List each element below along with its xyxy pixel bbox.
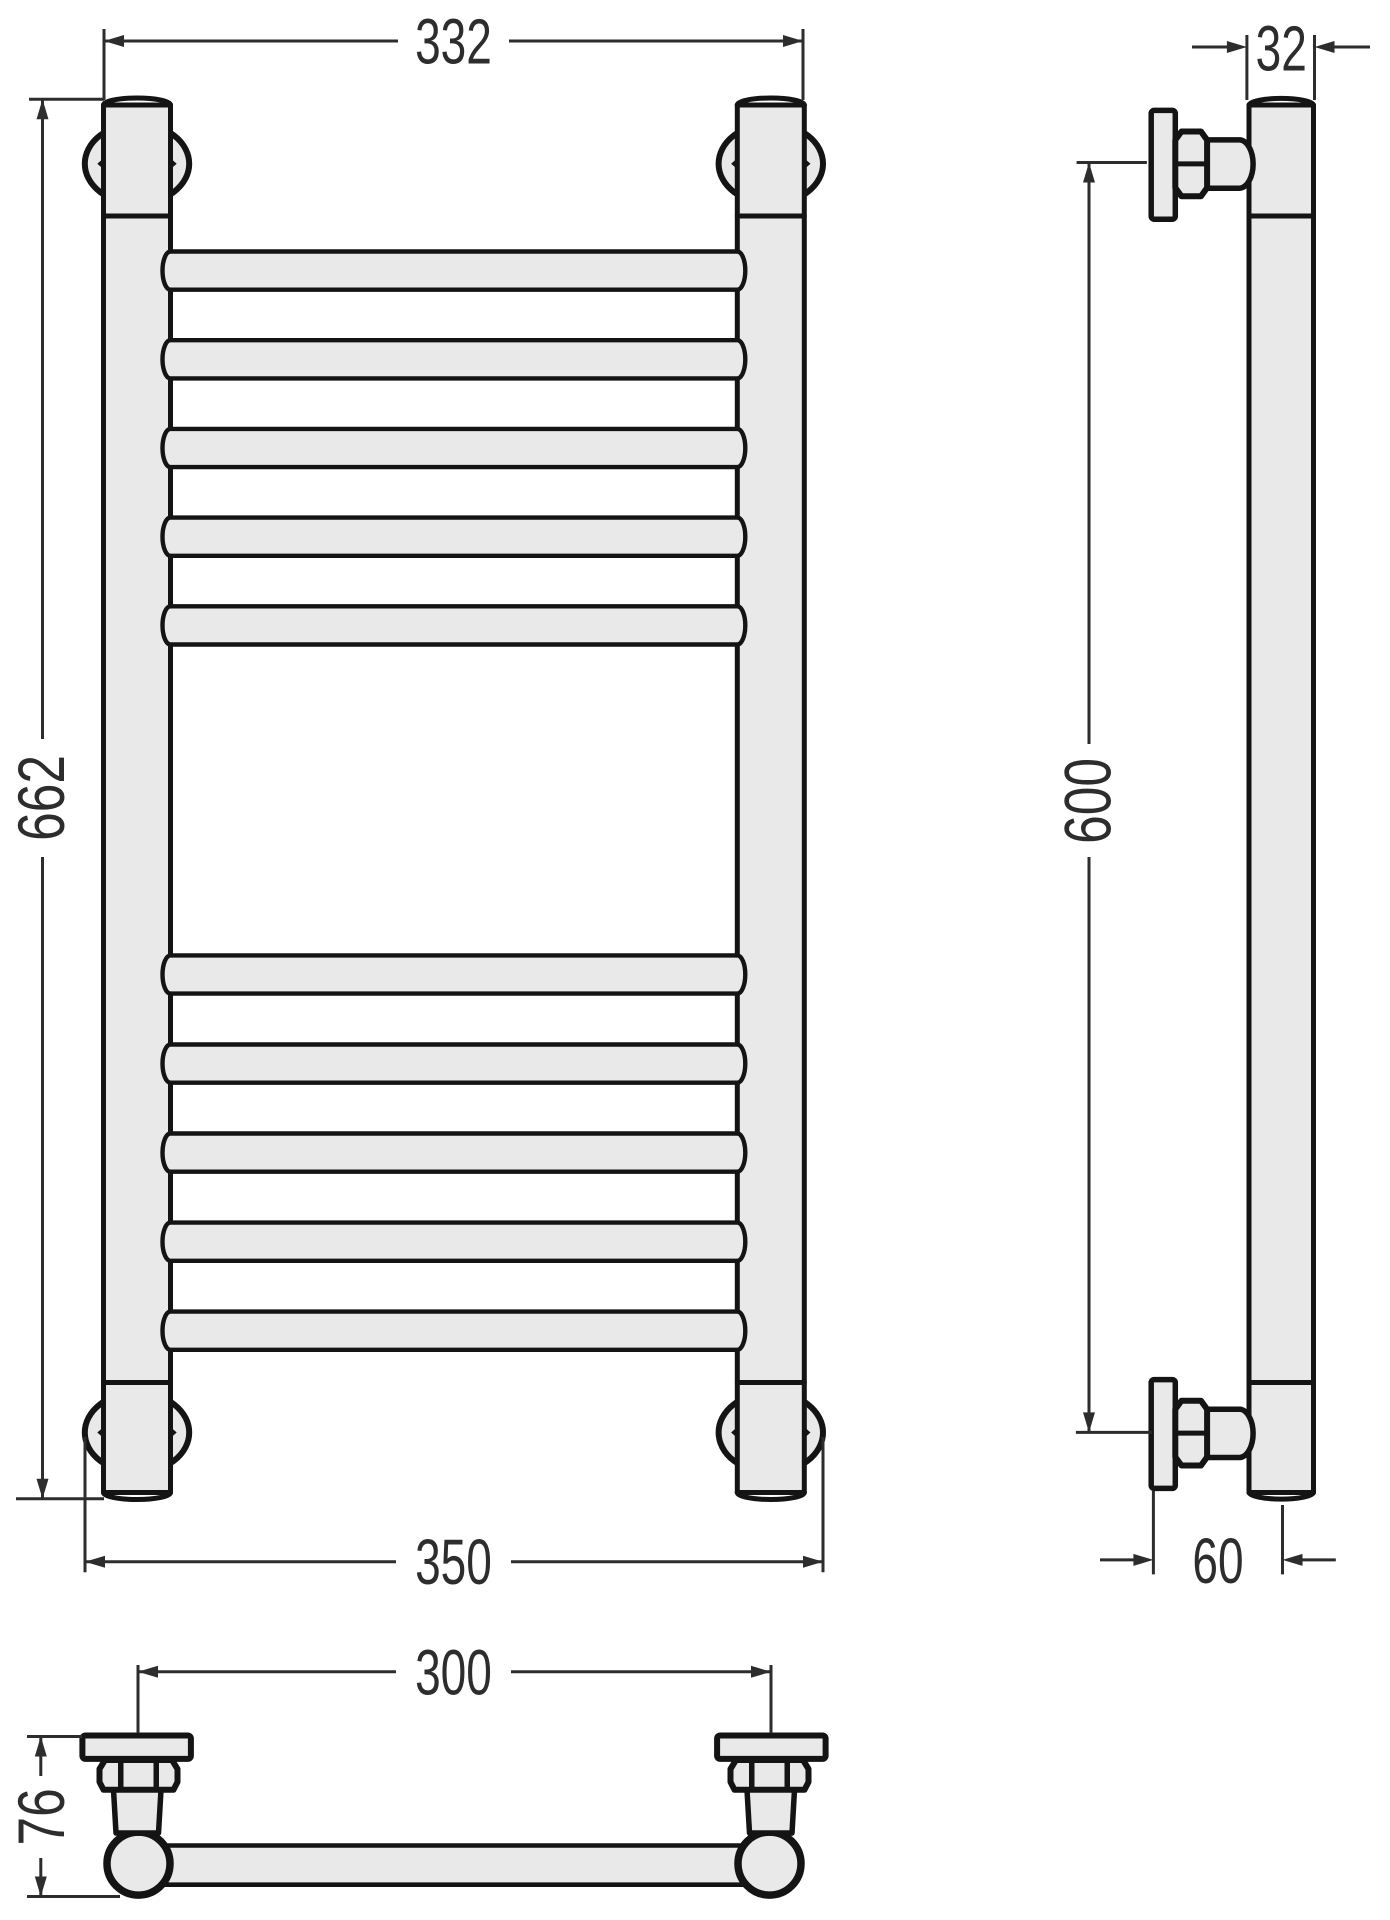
svg-text:350: 350	[415, 1527, 492, 1598]
svg-text:60: 60	[1192, 1526, 1243, 1597]
svg-text:32: 32	[1256, 13, 1307, 84]
svg-text:300: 300	[415, 1637, 492, 1708]
svg-text:662: 662	[4, 755, 79, 841]
svg-text:76: 76	[4, 1788, 79, 1845]
svg-text:332: 332	[415, 6, 492, 77]
svg-text:600: 600	[1050, 758, 1125, 844]
